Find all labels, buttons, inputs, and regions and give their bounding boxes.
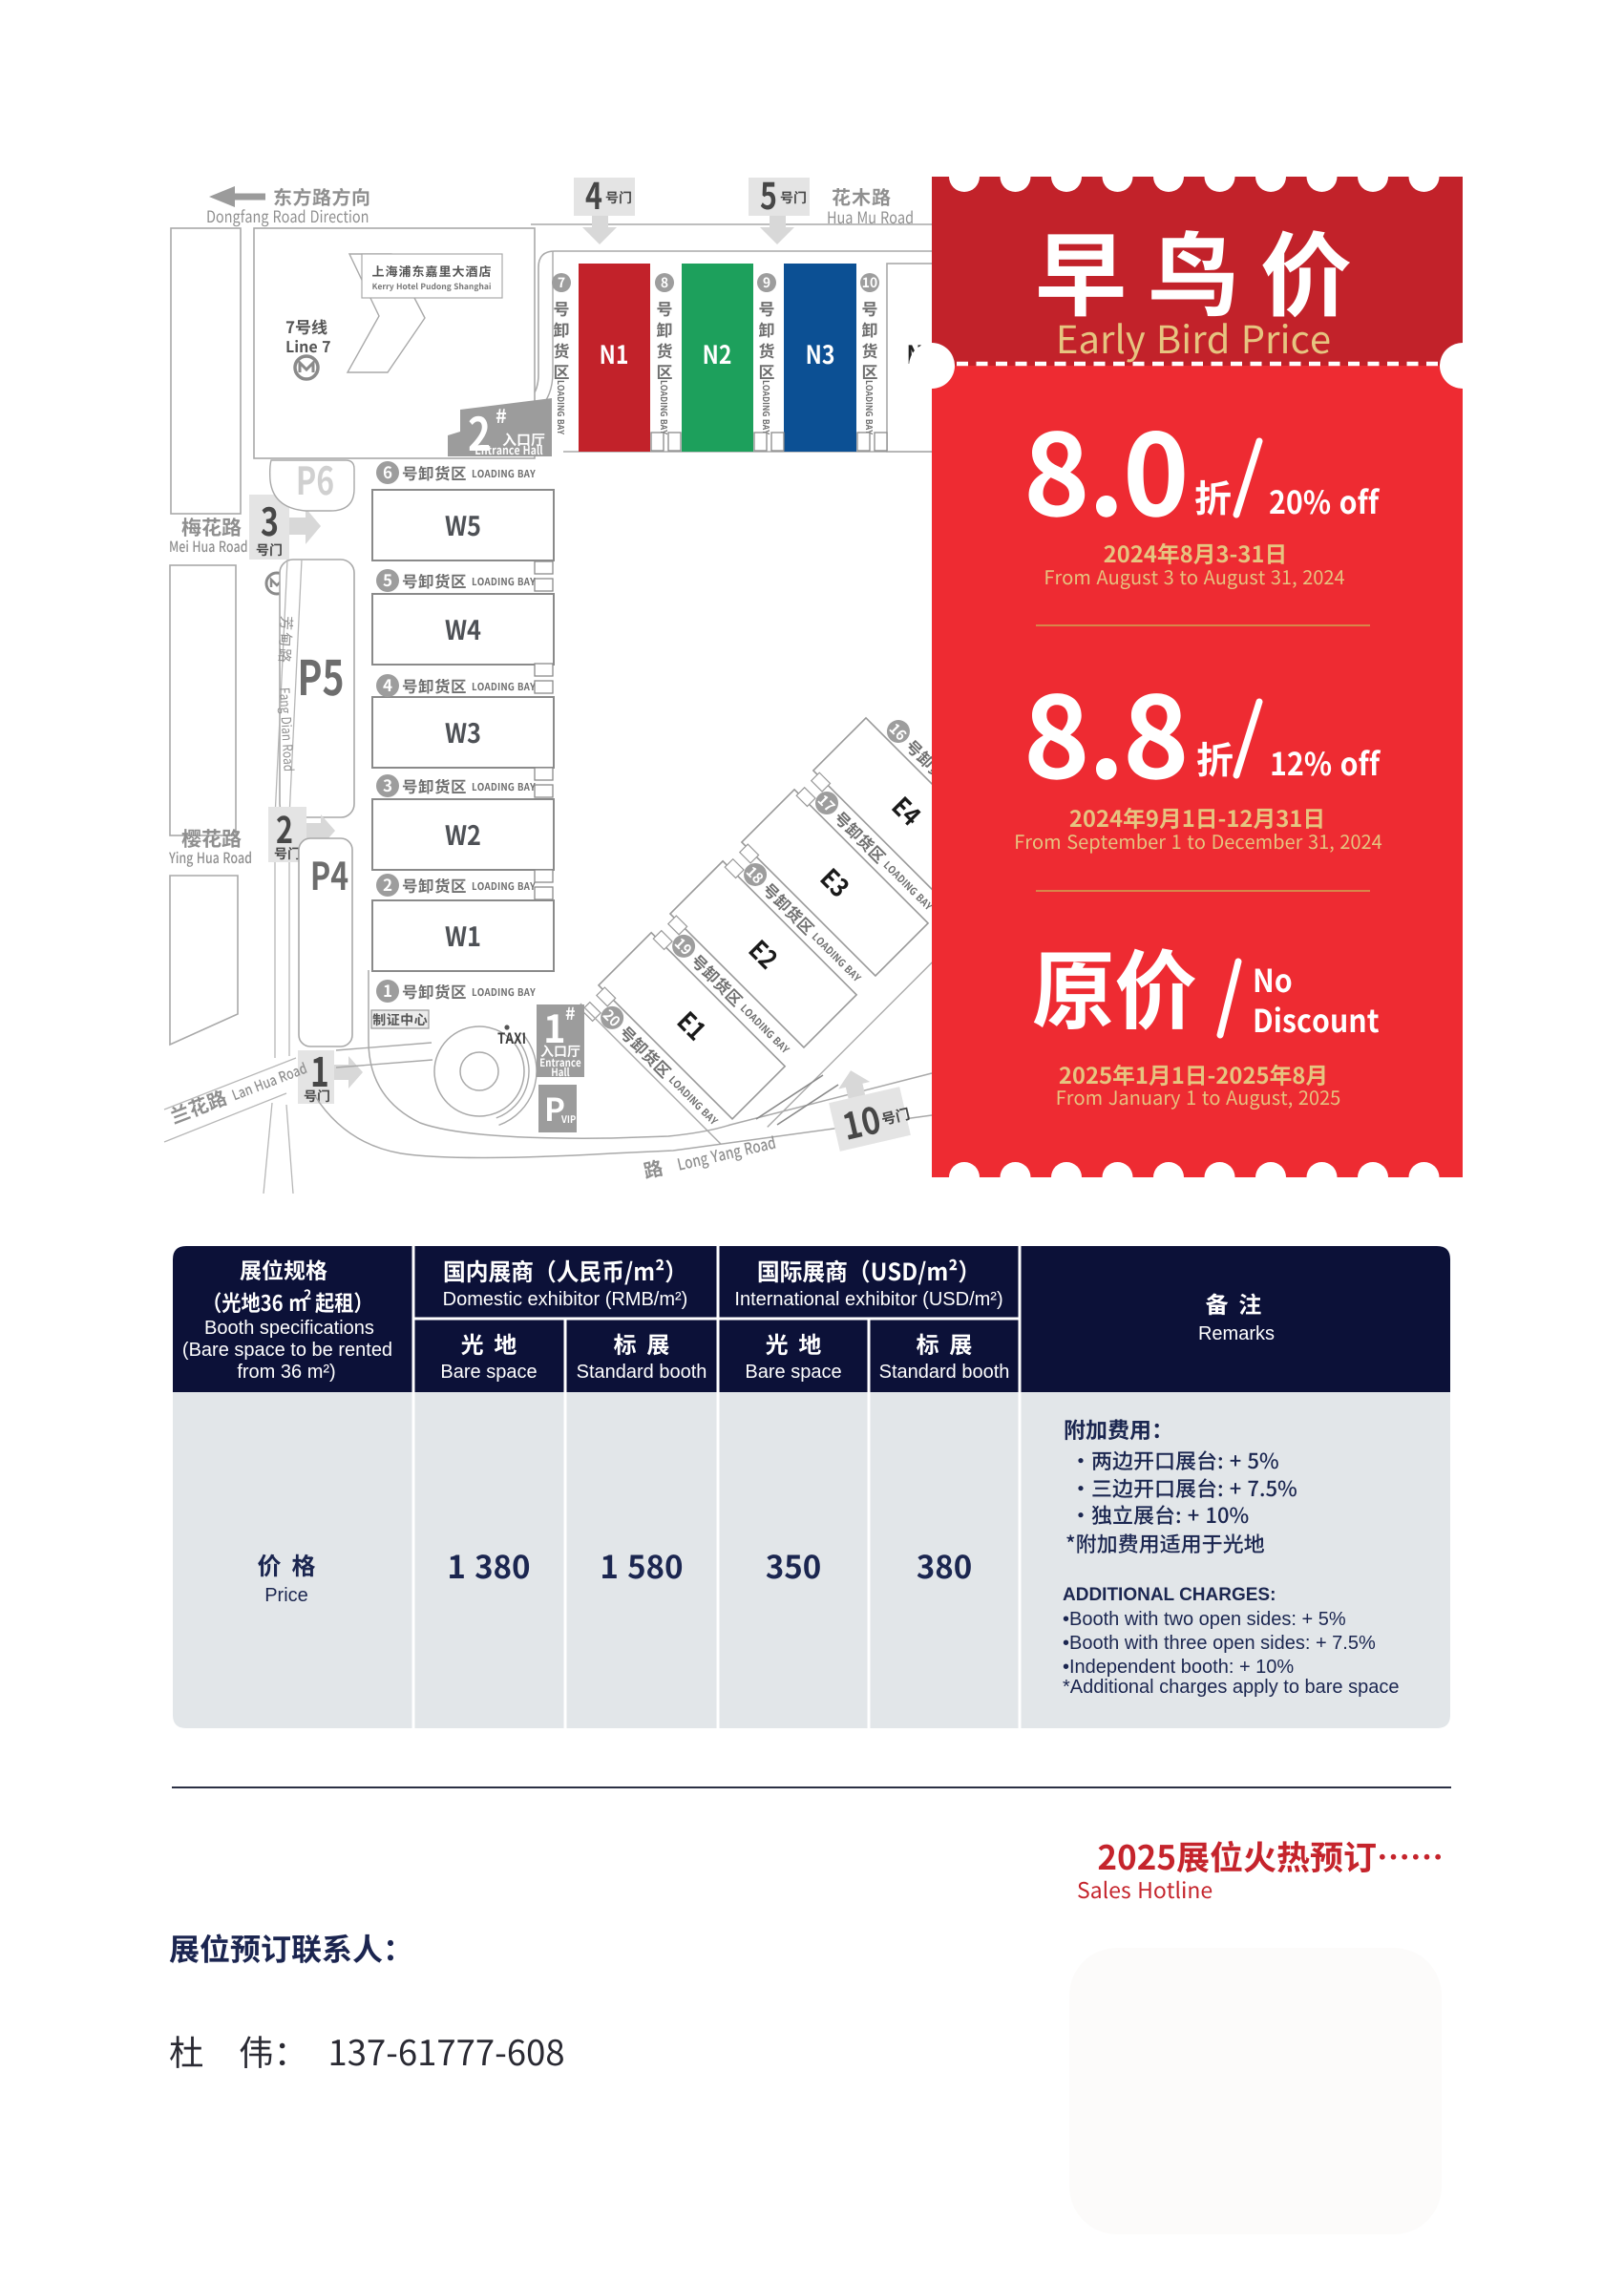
svg-text:Booth specifications: Booth specifications (204, 1318, 374, 1339)
svg-text:Bare space: Bare space (745, 1362, 841, 1383)
svg-text:(Bare space to be rented: (Bare space to be rented (182, 1340, 392, 1361)
svg-text:International exhibitor (USD/m: International exhibitor (USD/m²) (734, 1289, 1002, 1310)
svg-text:•Booth with three open sides:: •Booth with three open sides: + 7.5% (1063, 1633, 1376, 1654)
svg-text:Price: Price (264, 1585, 308, 1606)
svg-text:ADDITIONAL CHARGES:: ADDITIONAL CHARGES: (1063, 1585, 1276, 1605)
svg-text:Standard booth: Standard booth (577, 1362, 707, 1383)
svg-text:Remarks: Remarks (1198, 1323, 1275, 1344)
svg-text:•Booth with two open sides: +: •Booth with two open sides: + 5% (1063, 1609, 1346, 1630)
svg-text:Domestic exhibitor (RMB/m²): Domestic exhibitor (RMB/m²) (443, 1289, 688, 1310)
svg-text:*Additional charges apply to b: *Additional charges apply to bare space (1063, 1677, 1399, 1698)
svg-text:from 36 m²): from 36 m²) (237, 1362, 335, 1383)
svg-text:Bare space: Bare space (440, 1362, 537, 1383)
svg-text:•Independent booth: + 10%: •Independent booth: + 10% (1063, 1657, 1294, 1678)
svg-text:Standard booth: Standard booth (879, 1362, 1010, 1383)
